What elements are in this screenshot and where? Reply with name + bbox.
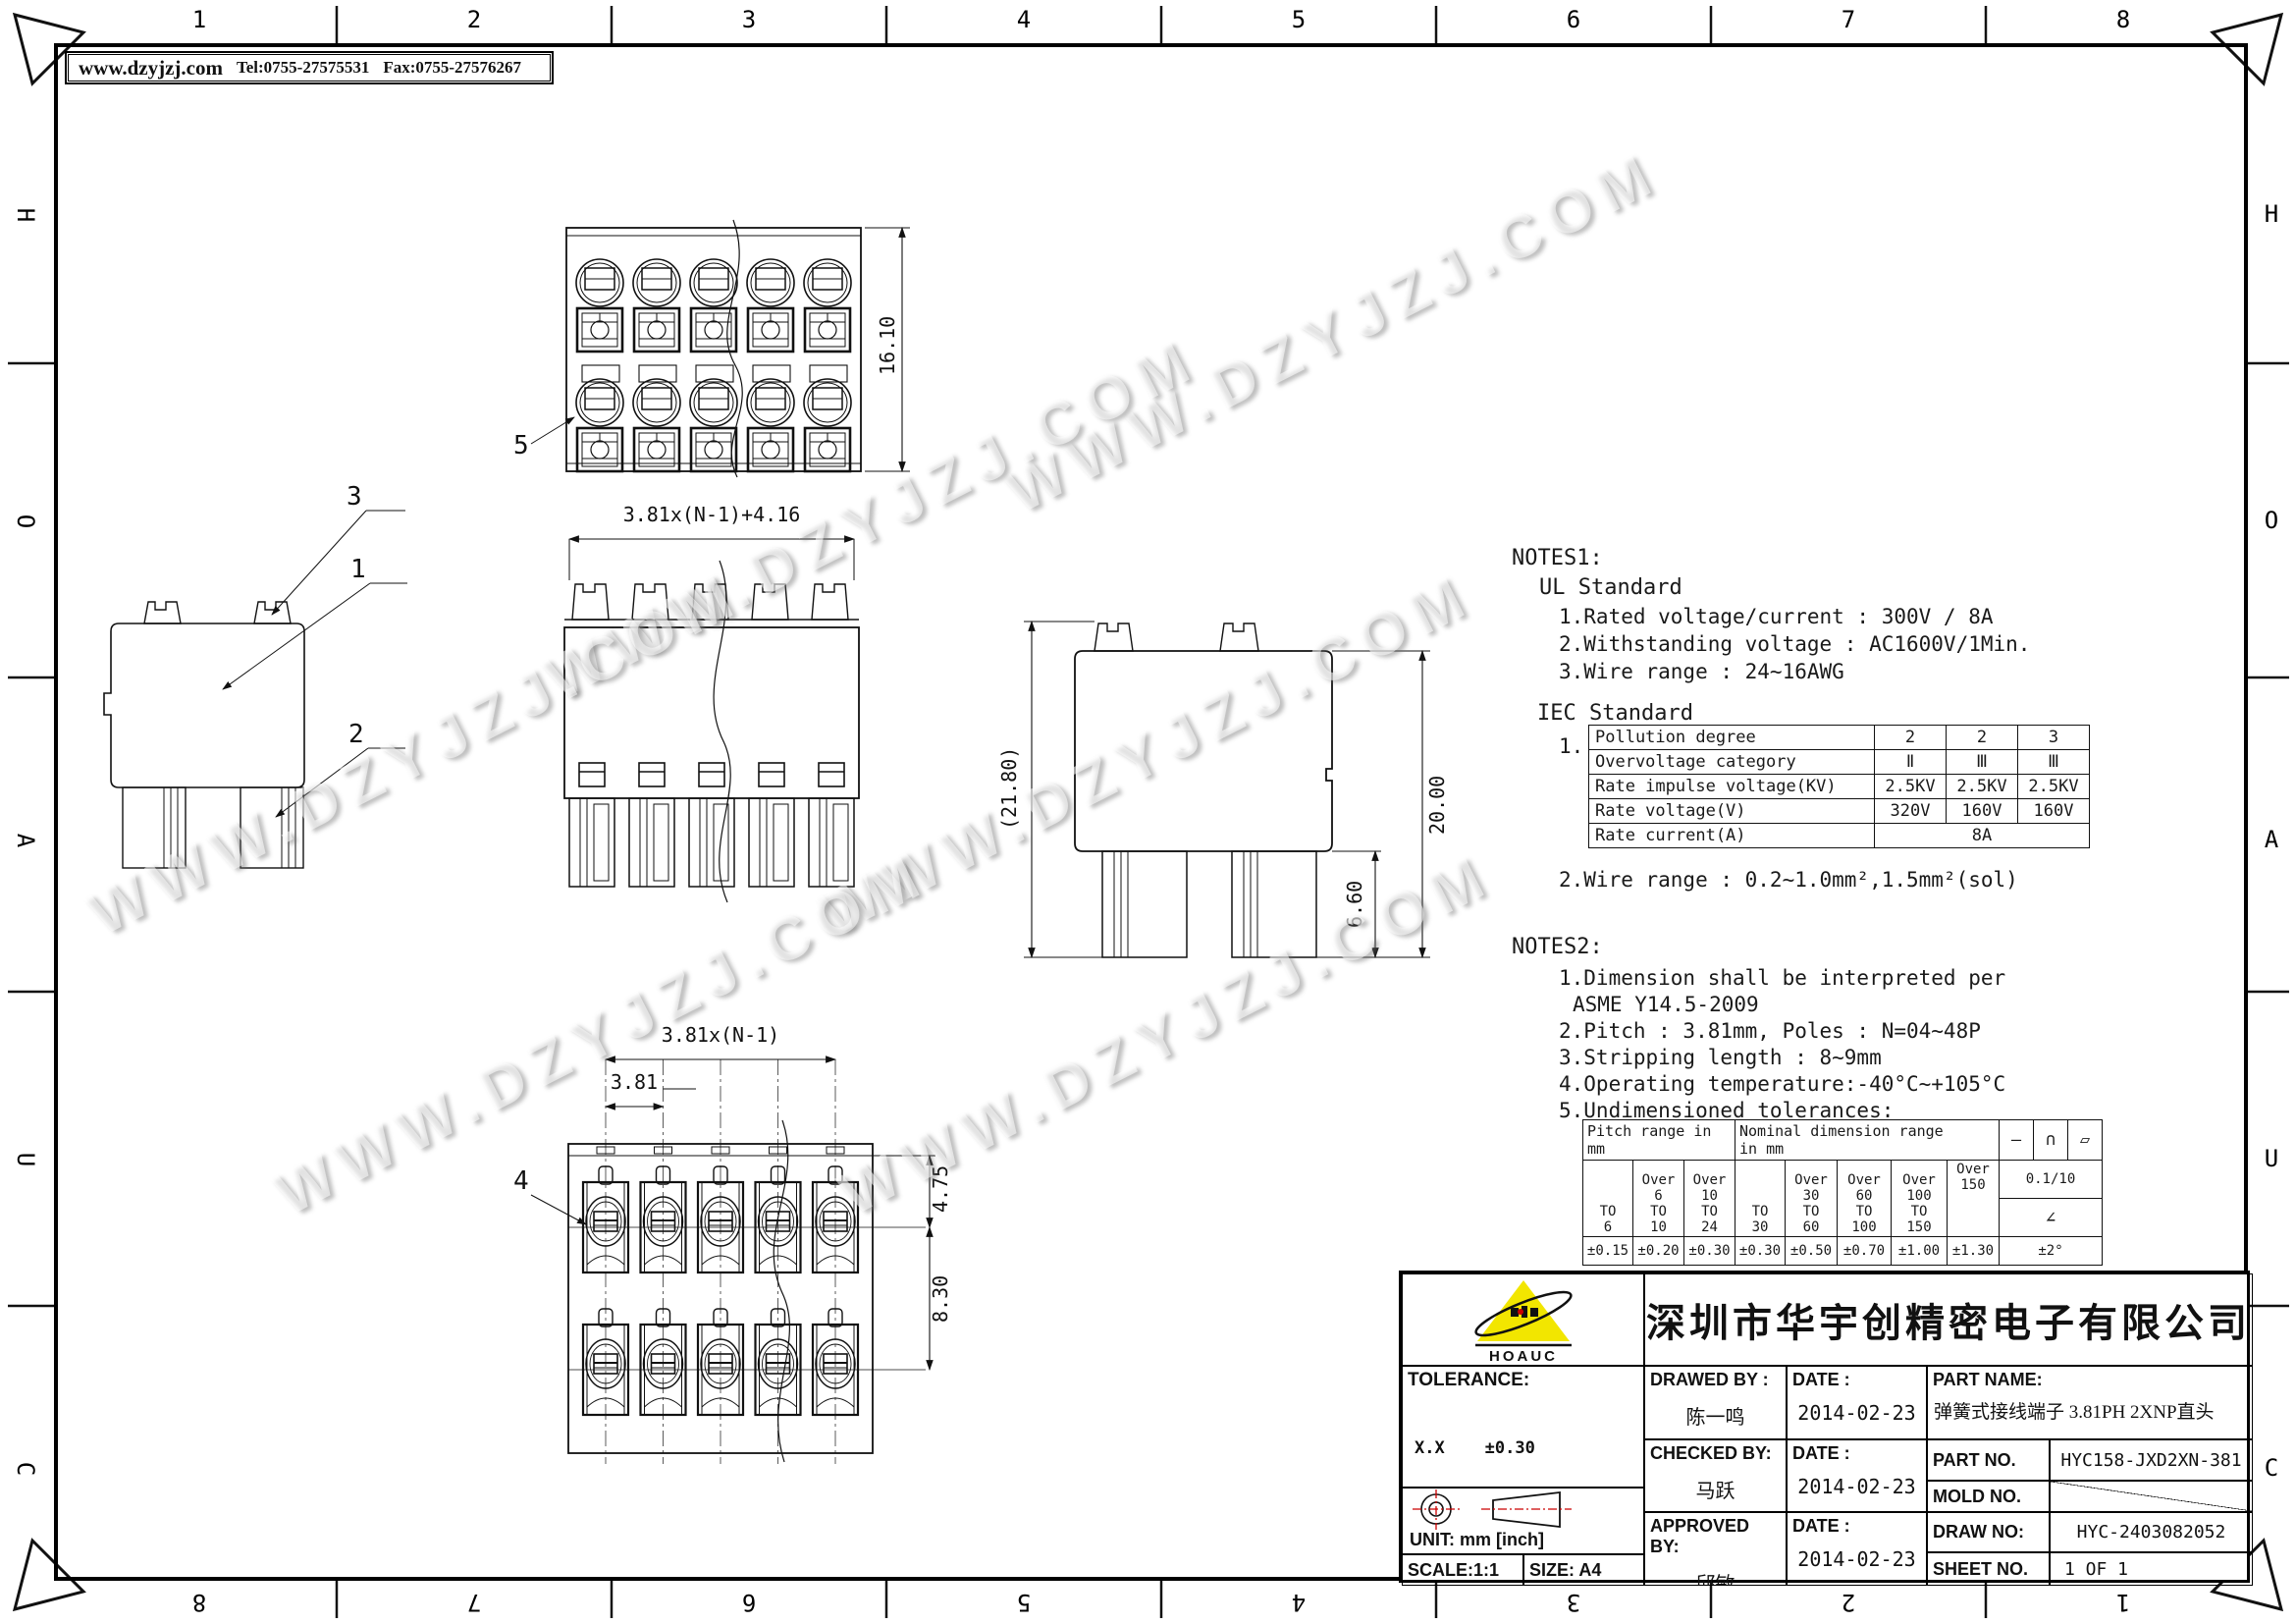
- drawing-sheet: 1 2 3 4 5 6 7 8 8 7 6 5 4 3 2 1 H O A U …: [0, 0, 2296, 1624]
- checked-by-cell: CHECKED BY: 马跃: [1644, 1439, 1787, 1512]
- table-row: Pitch range in mm Nominal dimension rang…: [1583, 1120, 2103, 1161]
- zone-letter-left: U: [10, 1145, 39, 1174]
- balloon-3: 3: [272, 482, 405, 615]
- iec-item-number: 1.: [1559, 734, 1583, 758]
- zone-number-top: 6: [1544, 6, 1603, 33]
- notes2-item: 1.Dimension shall be interpreted per: [1559, 966, 2005, 990]
- tolerance-block: TOLERANCE: X.X ±0.30 X.XX ±0.25 X.XXX ±0…: [1402, 1366, 1644, 1488]
- iec-row-label: Rate impulse voltage(KV): [1589, 775, 1875, 799]
- projection-symbol-cell: UNIT: mm [inch]: [1402, 1488, 1644, 1554]
- part-no-value: HYC158-JXD2XN-381: [2050, 1439, 2253, 1481]
- break-line: [727, 220, 742, 477]
- dimension-top-row: 4.75: [873, 1156, 952, 1227]
- zone-number-bottom: 1: [2094, 1589, 2153, 1616]
- draw-no-value: HYC-2403082052: [2050, 1512, 2253, 1552]
- zone-letter-right: U: [2257, 1145, 2286, 1174]
- tolerance-title: TOLERANCE:: [1403, 1367, 1643, 1394]
- table-row: Pollution degree 2 2 3: [1589, 726, 2090, 750]
- scale-label: SCALE:1:1: [1402, 1554, 1523, 1586]
- svg-text:5: 5: [513, 431, 529, 460]
- balloon-4: 4: [513, 1166, 586, 1224]
- dimension-16.10: 16.10: [865, 228, 910, 471]
- table-row: TO 6 Over 6 TO 10 Over 10 TO 24 TO 30 Ov…: [1583, 1161, 2103, 1199]
- table-row: Overvoltage category Ⅱ Ⅲ Ⅲ: [1589, 750, 2090, 775]
- logo-text: HOAUC: [1489, 1348, 1558, 1365]
- straightness-symbol: —: [2000, 1120, 2034, 1161]
- date-label: DATE :: [1788, 1440, 1926, 1467]
- first-angle-projection-icon: [1413, 1489, 1572, 1530]
- tolerance-line: X.X ±0.30: [1415, 1437, 1631, 1459]
- iec-row-label: Rate voltage(V): [1589, 799, 1875, 824]
- iec-row-label: Rate current(A): [1589, 824, 1875, 848]
- notes1-subtitle: UL Standard: [1539, 575, 1682, 600]
- svg-text:16.10: 16.10: [876, 316, 899, 375]
- zone-number-top: 4: [994, 6, 1053, 33]
- zone-number-top: 3: [720, 6, 778, 33]
- iec-ratings-table: Pollution degree 2 2 3 Overvoltage categ…: [1588, 725, 2090, 848]
- sheet-no-label: SHEET NO.: [1927, 1552, 2050, 1586]
- table-row: Rate voltage(V) 320V 160V 160V: [1589, 799, 2090, 824]
- notes2-item: 4.Operating temperature:-40°C~+105°C: [1559, 1072, 2005, 1096]
- table-row: ±0.15 ±0.20 ±0.30 ±0.30 ±0.50 ±0.70 ±1.0…: [1583, 1237, 2103, 1266]
- terminal-grid: [576, 259, 851, 471]
- approved-by-cell: APPROVED BY: 邱敏: [1644, 1512, 1787, 1586]
- notes2-item: 2.Pitch : 3.81mm, Poles : N=04~48P: [1559, 1019, 1981, 1043]
- zone-number-bottom: 2: [1819, 1589, 1878, 1616]
- logo-red-dot: [1518, 1309, 1523, 1315]
- table-row: Rate current(A) 8A: [1589, 824, 2090, 848]
- checked-by-label: CHECKED BY:: [1645, 1440, 1786, 1467]
- zone-number-top: 5: [1269, 6, 1328, 33]
- part-name-label: PART NAME:: [1928, 1367, 2252, 1393]
- zone-number-top: 1: [170, 6, 229, 33]
- iec-row-label: Overvoltage category: [1589, 750, 1875, 775]
- zone-number-bottom: 6: [720, 1589, 778, 1616]
- break-line: [774, 1120, 789, 1462]
- approved-date-cell: DATE : 2014-02-23: [1787, 1512, 1927, 1586]
- svg-text:3.81: 3.81: [611, 1070, 658, 1094]
- svg-text:2: 2: [348, 720, 364, 749]
- svg-text:8.30: 8.30: [929, 1275, 952, 1323]
- svg-text:6.60: 6.60: [1343, 881, 1366, 928]
- solder-legs: [123, 787, 303, 868]
- zone-letter-left: A: [10, 826, 39, 855]
- approved-by-label: APPROVED BY:: [1645, 1513, 1786, 1560]
- angle-tolerance: ±2°: [2000, 1237, 2103, 1266]
- zone-letter-right: O: [2257, 507, 2286, 536]
- unit-label: UNIT: mm [inch]: [1405, 1527, 1549, 1553]
- balloon-1: 1: [223, 555, 407, 689]
- svg-text:4: 4: [513, 1166, 529, 1196]
- size-label: SIZE: A4: [1523, 1554, 1644, 1586]
- latch-profiles: [1095, 623, 1258, 651]
- drawed-by-label: DRAWED BY :: [1645, 1367, 1786, 1393]
- wire-windows: [579, 763, 844, 786]
- mold-no-value-empty: [2050, 1481, 2253, 1512]
- dimension-body-height: 20.00: [1316, 651, 1449, 957]
- view-side-left: 3 1 2: [93, 471, 417, 893]
- contact-info-bar: www.dzyjzj.com Tel:0755-27575531 Fax:075…: [65, 51, 554, 84]
- svg-text:3: 3: [347, 482, 362, 512]
- view-front: 3.81x(N-1)+4.16: [545, 496, 879, 908]
- housing-body: [564, 627, 859, 798]
- company-logo: HOAUC: [1402, 1273, 1644, 1366]
- drawed-date-cell: DATE : 2014-02-23: [1787, 1366, 1927, 1439]
- zone-letter-right: C: [2257, 1454, 2286, 1484]
- zone-number-bottom: 4: [1269, 1589, 1328, 1616]
- notes2-item: ASME Y14.5-2009: [1573, 993, 1759, 1016]
- arc-symbol: ∩: [2034, 1120, 2068, 1161]
- zone-number-bottom: 5: [994, 1589, 1053, 1616]
- housing-body: [1075, 651, 1332, 851]
- mold-no-label: MOLD NO.: [1927, 1481, 2050, 1512]
- zone-number-bottom: 3: [1544, 1589, 1603, 1616]
- dimension-total-height: (21.80): [997, 622, 1102, 957]
- checked-date-cell: DATE : 2014-02-23: [1787, 1439, 1927, 1512]
- svg-text:(21.80): (21.80): [997, 747, 1021, 830]
- draw-no-label: DRAW NO:: [1927, 1512, 2050, 1552]
- svg-text:3.81x(N-1)+4.16: 3.81x(N-1)+4.16: [623, 503, 801, 526]
- notes1-item: 1.Rated voltage/current : 300V / 8A: [1559, 605, 1994, 628]
- dimension-span: 3.81x(N-1): [606, 1023, 835, 1059]
- notes2-title: NOTES2:: [1512, 935, 1603, 959]
- table-row: Rate impulse voltage(KV) 2.5KV 2.5KV 2.5…: [1589, 775, 2090, 799]
- housing-body: [104, 623, 304, 787]
- dimension-leg-height: 6.60: [1332, 851, 1381, 957]
- checked-by-name: 马跃: [1645, 1475, 1786, 1503]
- notes2-item: 3.Stripping length : 8~9mm: [1559, 1046, 1882, 1069]
- company-name: 深圳市华宇创精密电子有限公司: [1644, 1273, 2253, 1366]
- telephone: Tel:0755-27575531: [237, 58, 369, 78]
- fax: Fax:0755-27576267: [383, 58, 521, 78]
- zone-letter-left: C: [10, 1454, 39, 1484]
- zone-number-top: 7: [1819, 6, 1878, 33]
- date-label: DATE :: [1788, 1367, 1926, 1393]
- view-side-right: (21.80) 20.00 6.60: [947, 545, 1492, 1006]
- sheet-no-value: 1 OF 1: [2050, 1552, 2253, 1586]
- title-block: HOAUC 深圳市华宇创精密电子有限公司 TOLERANCE: X.X ±0.3…: [1399, 1271, 2250, 1583]
- approved-date: 2014-02-23: [1788, 1547, 1926, 1571]
- svg-text:4.75: 4.75: [929, 1165, 952, 1213]
- checked-date: 2014-02-23: [1788, 1475, 1926, 1498]
- part-name-value: 弹簧式接线端子 3.81PH 2XNP直头: [1928, 1393, 2252, 1428]
- notes1-item: 3.Wire range : 24~16AWG: [1559, 660, 1844, 683]
- notes1-item: 2.Withstanding voltage : AC1600V/1Min.: [1559, 632, 2030, 656]
- latch-profiles: [144, 602, 291, 623]
- solder-legs: [1102, 851, 1316, 957]
- view-top-plan: 16.10 5: [506, 218, 928, 498]
- zone-number-bottom: 8: [170, 1589, 229, 1616]
- undimensioned-tolerance-table: Pitch range in mm Nominal dimension rang…: [1582, 1119, 2103, 1266]
- part-name-cell: PART NAME: 弹簧式接线端子 3.81PH 2XNP直头: [1927, 1366, 2253, 1439]
- dimension-row-spacing: 8.30: [929, 1227, 952, 1370]
- website-url: www.dzyjzj.com: [79, 56, 223, 81]
- date-label: DATE :: [1788, 1513, 1926, 1540]
- svg-text:1: 1: [350, 555, 366, 584]
- flatness-tolerance: 0.1/10: [2000, 1161, 2103, 1199]
- approved-by-name: 邱敏: [1645, 1568, 1786, 1586]
- drawed-by-cell: DRAWED BY : 陈一鸣: [1644, 1366, 1787, 1439]
- iec-standard-title: IEC Standard: [1537, 701, 1693, 726]
- zone-letter-right: H: [2257, 200, 2286, 230]
- notes1-title: NOTES1:: [1512, 546, 1603, 570]
- balloon-2: 2: [276, 720, 405, 817]
- dimension-width: 3.81x(N-1)+4.16: [569, 503, 854, 580]
- drawed-by-name: 陈一鸣: [1645, 1401, 1786, 1430]
- balloon-5: 5: [513, 417, 574, 460]
- drawed-date: 2014-02-23: [1788, 1401, 1926, 1425]
- dimension-pitch: 3.81: [606, 1070, 696, 1107]
- part-no-label: PART NO.: [1927, 1439, 2050, 1481]
- svg-text:20.00: 20.00: [1425, 776, 1449, 835]
- zone-number-top: 2: [445, 6, 504, 33]
- svg-text:3.81x(N-1): 3.81x(N-1): [662, 1023, 779, 1047]
- zone-letter-right: A: [2257, 826, 2286, 855]
- zone-number-bottom: 7: [445, 1589, 504, 1616]
- angle-symbol: ∠: [2000, 1199, 2103, 1237]
- zone-letter-left: O: [10, 507, 39, 536]
- wire-range-note: 2.Wire range : 0.2~1.0mm²,1.5mm²(sol): [1559, 868, 2018, 892]
- zone-number-top: 8: [2094, 6, 2153, 33]
- parallelogram-symbol: ▱: [2068, 1120, 2103, 1161]
- view-bottom: 3.81x(N-1) 3.81 4: [486, 1016, 1006, 1468]
- zone-letter-left: H: [10, 200, 39, 230]
- iec-row-label: Pollution degree: [1589, 726, 1875, 750]
